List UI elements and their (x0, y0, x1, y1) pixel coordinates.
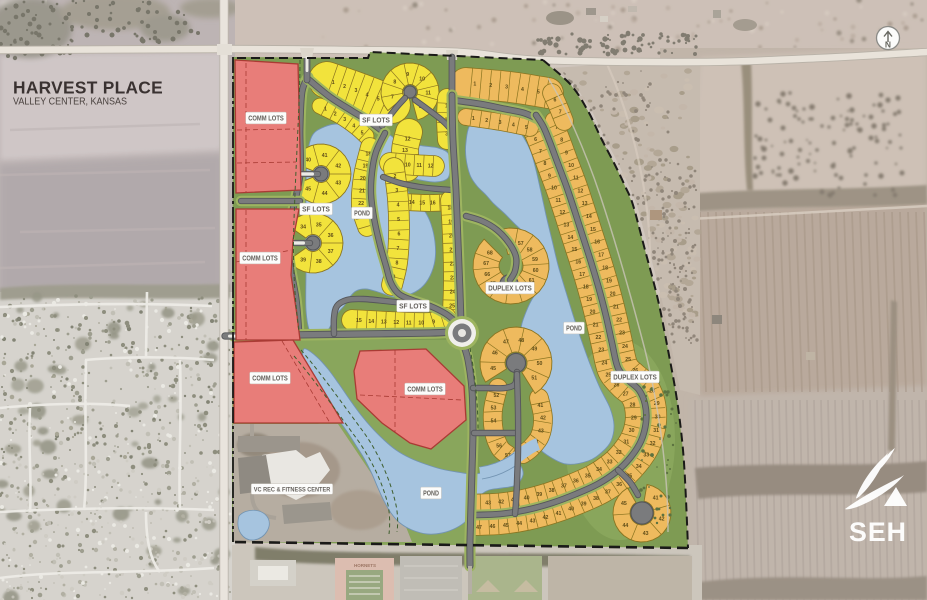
svg-text:14: 14 (409, 200, 415, 206)
svg-text:16: 16 (594, 240, 600, 246)
svg-text:41: 41 (538, 403, 544, 409)
svg-text:18: 18 (583, 285, 589, 291)
svg-text:38: 38 (316, 259, 322, 265)
svg-text:13: 13 (381, 320, 387, 326)
svg-text:58: 58 (527, 247, 533, 253)
svg-text:37: 37 (605, 490, 611, 496)
svg-text:43: 43 (530, 519, 536, 525)
svg-text:4: 4 (352, 123, 355, 129)
svg-text:57: 57 (518, 241, 524, 247)
svg-text:41: 41 (653, 496, 659, 502)
svg-text:24: 24 (602, 360, 608, 366)
svg-text:12: 12 (428, 164, 434, 170)
svg-text:13: 13 (564, 223, 570, 229)
svg-text:45: 45 (490, 366, 496, 372)
svg-text:6: 6 (534, 137, 537, 143)
svg-text:6: 6 (398, 232, 401, 238)
svg-text:POND: POND (354, 209, 370, 218)
svg-text:1: 1 (332, 80, 335, 86)
svg-text:1: 1 (472, 116, 475, 122)
svg-text:4: 4 (512, 123, 515, 129)
svg-text:29: 29 (631, 415, 637, 421)
svg-text:11: 11 (556, 198, 562, 204)
svg-text:68: 68 (487, 251, 493, 257)
svg-text:31: 31 (623, 440, 629, 446)
svg-text:46: 46 (492, 351, 498, 357)
svg-text:SF LOTS: SF LOTS (302, 205, 330, 214)
svg-text:54: 54 (491, 419, 497, 425)
svg-text:10: 10 (418, 321, 424, 327)
svg-text:33: 33 (607, 459, 613, 465)
svg-text:51: 51 (531, 376, 537, 382)
svg-text:10: 10 (551, 186, 557, 192)
svg-text:36: 36 (573, 479, 579, 485)
svg-text:56: 56 (496, 444, 502, 450)
svg-text:35: 35 (316, 223, 322, 229)
svg-text:19: 19 (586, 297, 592, 303)
svg-text:7: 7 (539, 149, 542, 155)
svg-text:3: 3 (499, 120, 502, 126)
svg-text:45: 45 (503, 523, 509, 529)
svg-text:53: 53 (491, 406, 497, 412)
svg-text:VC REC & FITNESS CENTER: VC REC & FITNESS CENTER (254, 486, 331, 493)
svg-text:17: 17 (598, 253, 604, 259)
svg-text:15: 15 (590, 227, 596, 233)
svg-text:33: 33 (643, 453, 649, 459)
svg-text:34: 34 (596, 467, 602, 473)
svg-text:4: 4 (366, 92, 369, 98)
svg-text:35: 35 (585, 473, 591, 479)
svg-text:13: 13 (582, 201, 588, 207)
svg-text:37: 37 (561, 484, 567, 490)
svg-text:5: 5 (525, 125, 528, 131)
svg-text:3: 3 (395, 188, 398, 194)
svg-text:DUPLEX LOTS: DUPLEX LOTS (613, 373, 657, 382)
svg-text:3: 3 (343, 117, 346, 123)
svg-text:14: 14 (368, 319, 374, 325)
svg-text:16: 16 (575, 260, 581, 266)
svg-text:20: 20 (590, 310, 596, 316)
svg-text:25: 25 (625, 357, 631, 363)
svg-text:43: 43 (485, 500, 491, 506)
svg-text:12: 12 (393, 320, 399, 326)
svg-text:11: 11 (406, 320, 412, 326)
svg-text:3: 3 (354, 88, 357, 94)
svg-text:18: 18 (602, 265, 608, 271)
svg-text:7: 7 (391, 95, 394, 101)
svg-text:7: 7 (559, 109, 562, 115)
svg-text:2: 2 (485, 118, 488, 124)
svg-text:21: 21 (593, 322, 599, 328)
svg-text:23: 23 (598, 348, 604, 354)
svg-text:22: 22 (596, 335, 602, 341)
svg-text:COMM LOTS: COMM LOTS (242, 254, 278, 263)
svg-text:21: 21 (359, 188, 365, 194)
svg-text:42: 42 (543, 515, 549, 521)
svg-text:SEH: SEH (849, 517, 907, 547)
svg-text:5: 5 (537, 89, 540, 95)
svg-text:42: 42 (335, 163, 341, 169)
svg-text:12: 12 (560, 210, 566, 216)
svg-text:1: 1 (473, 82, 476, 88)
svg-text:43: 43 (643, 531, 649, 537)
svg-text:39: 39 (300, 257, 306, 263)
svg-text:8: 8 (543, 161, 546, 167)
svg-text:40: 40 (568, 507, 574, 513)
svg-text:11: 11 (416, 163, 422, 169)
svg-text:6: 6 (554, 97, 557, 103)
svg-text:20: 20 (610, 291, 616, 297)
svg-text:45: 45 (621, 501, 627, 507)
svg-text:9: 9 (548, 173, 551, 179)
svg-text:67: 67 (483, 261, 489, 267)
svg-text:31: 31 (653, 428, 659, 434)
svg-text:36: 36 (616, 482, 622, 488)
svg-text:38: 38 (593, 496, 599, 502)
svg-text:41: 41 (322, 153, 328, 159)
svg-text:VALLEY CENTER, KANSAS: VALLEY CENTER, KANSAS (13, 97, 127, 108)
svg-text:COMM LOTS: COMM LOTS (407, 385, 443, 394)
svg-text:13: 13 (402, 148, 408, 154)
svg-text:44: 44 (623, 523, 629, 529)
svg-text:39: 39 (581, 502, 587, 508)
svg-text:21: 21 (613, 304, 619, 310)
svg-text:17: 17 (579, 272, 585, 278)
svg-text:39: 39 (536, 492, 542, 498)
svg-text:12: 12 (405, 136, 411, 142)
svg-text:3: 3 (505, 85, 508, 91)
svg-text:46: 46 (490, 524, 496, 530)
svg-text:40: 40 (305, 158, 311, 164)
svg-text:59: 59 (532, 257, 538, 263)
svg-text:19: 19 (606, 278, 612, 284)
svg-text:47: 47 (503, 340, 509, 346)
svg-text:50: 50 (537, 361, 543, 367)
svg-text:1: 1 (324, 107, 327, 113)
svg-text:14: 14 (568, 235, 574, 241)
svg-text:5: 5 (397, 217, 400, 223)
svg-text:44: 44 (516, 521, 522, 527)
svg-text:36: 36 (328, 233, 334, 239)
svg-text:42: 42 (659, 517, 665, 523)
svg-text:25: 25 (606, 372, 612, 378)
svg-text:22: 22 (358, 201, 364, 207)
svg-text:14: 14 (586, 214, 592, 220)
svg-text:POND: POND (423, 489, 439, 498)
svg-text:45: 45 (305, 186, 311, 192)
svg-text:32: 32 (616, 450, 622, 456)
svg-text:49: 49 (532, 346, 538, 352)
svg-text:2: 2 (489, 83, 492, 89)
svg-text:COMM LOTS: COMM LOTS (252, 374, 288, 383)
svg-text:66: 66 (484, 272, 490, 278)
svg-text:41: 41 (556, 511, 562, 517)
svg-text:43: 43 (335, 180, 341, 186)
svg-text:11: 11 (573, 176, 579, 182)
svg-text:DUPLEX LOTS: DUPLEX LOTS (488, 284, 532, 293)
svg-text:5: 5 (377, 97, 380, 103)
svg-text:11: 11 (425, 90, 431, 96)
svg-text:43: 43 (538, 429, 544, 435)
svg-text:5: 5 (361, 130, 364, 136)
svg-text:48: 48 (518, 338, 524, 344)
svg-text:SF LOTS: SF LOTS (399, 302, 427, 311)
svg-text:44: 44 (322, 191, 328, 197)
svg-text:2: 2 (343, 84, 346, 90)
svg-text:23: 23 (619, 331, 625, 337)
svg-text:15: 15 (572, 247, 578, 253)
svg-text:47: 47 (476, 525, 482, 531)
svg-text:8: 8 (396, 261, 399, 267)
svg-text:42: 42 (498, 500, 504, 506)
svg-text:37: 37 (328, 249, 334, 255)
svg-text:32: 32 (650, 441, 656, 447)
svg-text:15: 15 (356, 318, 362, 324)
svg-text:9: 9 (406, 72, 409, 78)
svg-text:9: 9 (432, 320, 435, 326)
svg-text:N: N (885, 40, 891, 50)
svg-text:24: 24 (622, 344, 628, 350)
svg-text:28: 28 (630, 403, 636, 409)
svg-text:4: 4 (521, 87, 524, 93)
svg-text:7: 7 (397, 246, 400, 252)
svg-text:42: 42 (540, 416, 546, 422)
svg-text:COMM LOTS: COMM LOTS (248, 114, 284, 123)
svg-text:SF LOTS: SF LOTS (362, 116, 390, 125)
svg-text:15: 15 (419, 201, 425, 207)
svg-text:12: 12 (578, 188, 584, 194)
svg-text:27: 27 (623, 392, 629, 398)
svg-text:60: 60 (533, 268, 539, 274)
svg-text:26: 26 (614, 383, 620, 389)
svg-text:38: 38 (549, 488, 555, 494)
svg-text:9: 9 (565, 150, 568, 156)
svg-text:20: 20 (360, 176, 366, 182)
svg-text:10: 10 (419, 76, 425, 82)
svg-text:HARVEST PLACE: HARVEST PLACE (13, 78, 163, 98)
svg-text:40: 40 (524, 495, 530, 501)
svg-text:34: 34 (300, 224, 306, 230)
svg-text:22: 22 (616, 318, 622, 324)
svg-text:2: 2 (334, 112, 337, 118)
svg-text:10: 10 (568, 163, 574, 169)
svg-text:8: 8 (560, 138, 563, 144)
svg-text:16: 16 (430, 201, 436, 207)
svg-text:34: 34 (636, 464, 642, 470)
svg-text:30: 30 (629, 428, 635, 434)
svg-text:4: 4 (397, 203, 400, 209)
svg-text:POND: POND (566, 324, 582, 333)
svg-text:52: 52 (494, 393, 500, 399)
svg-text:10: 10 (405, 162, 411, 168)
svg-text:8: 8 (393, 80, 396, 86)
